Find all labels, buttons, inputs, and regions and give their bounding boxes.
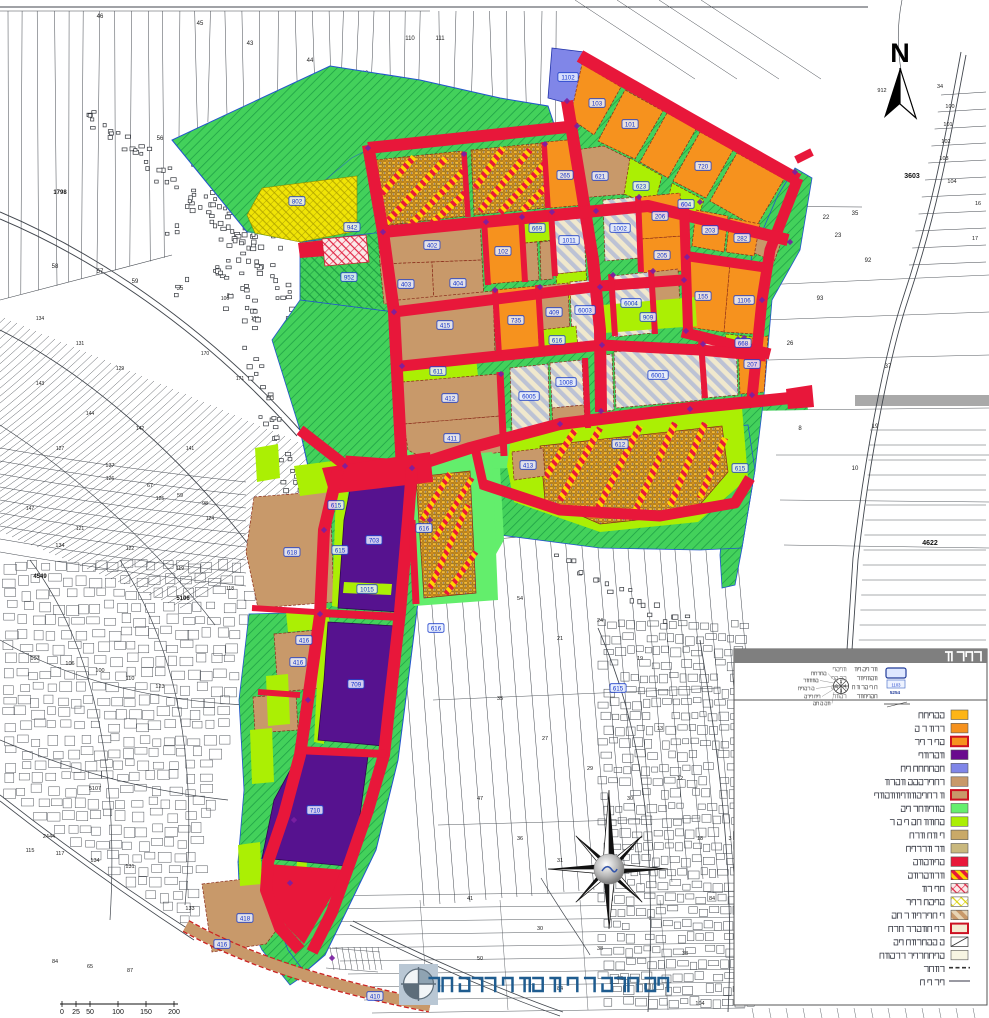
svg-text:131: 131 xyxy=(125,864,134,870)
svg-text:12: 12 xyxy=(677,776,683,782)
svg-text:26: 26 xyxy=(787,341,794,347)
svg-text:147: 147 xyxy=(26,506,35,512)
svg-text:171: 171 xyxy=(236,376,245,382)
svg-text:134: 134 xyxy=(55,543,64,549)
svg-text:615: 615 xyxy=(613,685,624,692)
svg-text:207: 207 xyxy=(747,361,758,368)
svg-text:6005: 6005 xyxy=(522,393,536,400)
svg-text:59: 59 xyxy=(177,493,183,499)
svg-text:912: 912 xyxy=(877,88,886,94)
svg-text:668: 668 xyxy=(738,340,749,347)
svg-text:141: 141 xyxy=(186,446,195,452)
svg-text:100: 100 xyxy=(945,104,954,110)
svg-text:35: 35 xyxy=(852,211,859,217)
svg-text:142: 142 xyxy=(136,426,145,432)
svg-text:709: 709 xyxy=(351,681,362,688)
svg-text:1002: 1002 xyxy=(613,225,627,232)
svg-text:170: 170 xyxy=(201,351,210,357)
svg-text:3603: 3603 xyxy=(904,173,920,180)
svg-text:621: 621 xyxy=(595,173,606,180)
svg-text:2444: 2444 xyxy=(43,834,55,840)
svg-text:104: 104 xyxy=(947,179,956,185)
svg-text:131: 131 xyxy=(76,341,85,347)
svg-text:102: 102 xyxy=(941,139,950,145)
svg-text:121: 121 xyxy=(76,526,85,532)
svg-text:416: 416 xyxy=(299,637,310,644)
svg-text:615: 615 xyxy=(335,547,346,554)
svg-text:19: 19 xyxy=(637,656,643,662)
svg-text:403: 403 xyxy=(401,281,412,288)
svg-text:418: 418 xyxy=(240,915,251,922)
svg-text:134: 134 xyxy=(36,316,45,322)
svg-text:117: 117 xyxy=(56,851,65,857)
svg-text:38: 38 xyxy=(597,946,603,952)
svg-text:909: 909 xyxy=(643,314,654,321)
svg-text:103: 103 xyxy=(939,156,948,162)
svg-text:29: 29 xyxy=(587,766,593,772)
svg-text:93: 93 xyxy=(817,296,824,302)
svg-text:5107: 5107 xyxy=(89,786,101,792)
svg-text:1008: 1008 xyxy=(559,379,573,386)
svg-text:92: 92 xyxy=(865,258,872,264)
svg-text:6004: 6004 xyxy=(624,300,638,307)
svg-text:952: 952 xyxy=(344,274,355,281)
svg-text:110: 110 xyxy=(126,676,135,682)
svg-text:36: 36 xyxy=(517,836,523,842)
svg-text:710: 710 xyxy=(310,807,321,814)
svg-text:616: 616 xyxy=(552,337,563,344)
svg-text:410: 410 xyxy=(370,993,381,1000)
svg-text:16: 16 xyxy=(975,201,981,207)
svg-text:30: 30 xyxy=(537,926,543,932)
svg-text:103: 103 xyxy=(592,100,603,107)
svg-text:43: 43 xyxy=(247,41,254,47)
svg-text:98: 98 xyxy=(202,501,208,507)
svg-text:412: 412 xyxy=(445,395,456,402)
svg-text:27: 27 xyxy=(542,736,548,742)
svg-text:618: 618 xyxy=(287,549,298,556)
svg-text:110: 110 xyxy=(405,36,415,42)
svg-text:127: 127 xyxy=(56,446,65,452)
svg-text:23: 23 xyxy=(835,233,842,239)
svg-text:282: 282 xyxy=(737,235,748,242)
svg-text:22: 22 xyxy=(823,215,830,221)
svg-text:604: 604 xyxy=(681,201,692,208)
svg-text:265: 265 xyxy=(560,172,571,179)
svg-text:134: 134 xyxy=(90,858,99,864)
svg-text:123: 123 xyxy=(155,684,164,690)
svg-text:35: 35 xyxy=(497,696,503,702)
svg-text:612: 612 xyxy=(615,441,626,448)
svg-text:102: 102 xyxy=(498,248,509,255)
svg-text:615: 615 xyxy=(331,502,342,509)
svg-text:155: 155 xyxy=(698,293,709,300)
svg-text:30: 30 xyxy=(627,796,633,802)
svg-text:611: 611 xyxy=(433,368,443,375)
svg-text:416: 416 xyxy=(217,941,228,948)
svg-text:19: 19 xyxy=(872,424,879,430)
svg-text:200: 200 xyxy=(168,1009,180,1016)
svg-text:5254: 5254 xyxy=(890,690,901,695)
svg-text:144: 144 xyxy=(86,411,95,417)
svg-text:1011: 1011 xyxy=(562,237,576,244)
svg-text:31: 31 xyxy=(557,858,563,864)
svg-text:41: 41 xyxy=(467,896,473,902)
svg-text:4622: 4622 xyxy=(922,540,938,547)
svg-text:47: 47 xyxy=(477,796,483,802)
svg-text:4549: 4549 xyxy=(33,574,47,580)
svg-text:703: 703 xyxy=(369,537,380,544)
svg-text:34: 34 xyxy=(937,84,943,90)
svg-text:115: 115 xyxy=(26,848,35,854)
svg-text:735: 735 xyxy=(511,317,522,324)
svg-text:720: 720 xyxy=(698,163,709,170)
svg-text:50: 50 xyxy=(477,956,483,962)
svg-text:100: 100 xyxy=(112,1009,124,1016)
svg-text:45: 45 xyxy=(197,21,204,27)
svg-text:203: 203 xyxy=(705,227,716,234)
svg-text:404: 404 xyxy=(453,280,464,287)
svg-text:150: 150 xyxy=(140,1009,152,1016)
svg-text:87: 87 xyxy=(127,968,133,974)
svg-text:25: 25 xyxy=(72,1009,80,1016)
svg-text:21: 21 xyxy=(557,636,563,642)
svg-text:104: 104 xyxy=(695,1001,704,1007)
svg-text:0: 0 xyxy=(60,1009,64,1016)
svg-text:37: 37 xyxy=(885,364,892,370)
svg-text:802: 802 xyxy=(292,198,303,205)
svg-text:129: 129 xyxy=(116,366,125,372)
svg-text:54: 54 xyxy=(517,596,523,602)
svg-text:44: 44 xyxy=(307,58,314,64)
svg-text:101: 101 xyxy=(625,121,636,128)
svg-text:942: 942 xyxy=(347,224,358,231)
svg-text:106: 106 xyxy=(65,661,74,667)
svg-text:107: 107 xyxy=(30,656,39,662)
svg-text:615: 615 xyxy=(735,465,746,472)
svg-text:58: 58 xyxy=(52,264,59,270)
svg-text:84: 84 xyxy=(52,959,58,965)
svg-text:616: 616 xyxy=(431,625,442,632)
svg-text:6001: 6001 xyxy=(651,372,665,379)
svg-text:1798: 1798 xyxy=(53,190,67,196)
svg-text:125: 125 xyxy=(156,496,165,502)
svg-text:143: 143 xyxy=(36,381,45,387)
svg-text:206: 206 xyxy=(655,213,666,220)
svg-text:59: 59 xyxy=(132,279,139,285)
svg-text:101: 101 xyxy=(943,122,952,128)
svg-text:1015: 1015 xyxy=(360,586,374,593)
svg-text:205: 205 xyxy=(657,252,668,259)
svg-text:1103: 1103 xyxy=(891,683,901,688)
svg-text:46: 46 xyxy=(97,14,104,20)
svg-text:N: N xyxy=(890,38,910,68)
svg-text:50: 50 xyxy=(86,1009,94,1016)
svg-text:409: 409 xyxy=(549,309,560,316)
svg-text:616: 616 xyxy=(419,525,430,532)
svg-text:402: 402 xyxy=(427,242,438,249)
svg-text:6003: 6003 xyxy=(578,307,592,314)
svg-text:3: 3 xyxy=(728,836,731,842)
svg-text:133: 133 xyxy=(185,906,194,912)
svg-text:669: 669 xyxy=(532,225,543,232)
svg-text:413: 413 xyxy=(523,462,534,469)
svg-text:65: 65 xyxy=(87,964,93,970)
svg-text:111: 111 xyxy=(435,36,445,42)
svg-text:100: 100 xyxy=(95,668,104,674)
svg-text:1106: 1106 xyxy=(737,297,751,304)
svg-text:623: 623 xyxy=(636,183,647,190)
svg-text:17: 17 xyxy=(972,236,978,242)
svg-text:1102: 1102 xyxy=(561,74,575,81)
svg-text:56: 56 xyxy=(157,136,164,142)
svg-text:415: 415 xyxy=(440,322,451,329)
svg-text:122: 122 xyxy=(126,546,135,552)
svg-text:416: 416 xyxy=(293,659,304,666)
svg-text:411: 411 xyxy=(447,435,457,442)
svg-text:10: 10 xyxy=(852,466,859,472)
